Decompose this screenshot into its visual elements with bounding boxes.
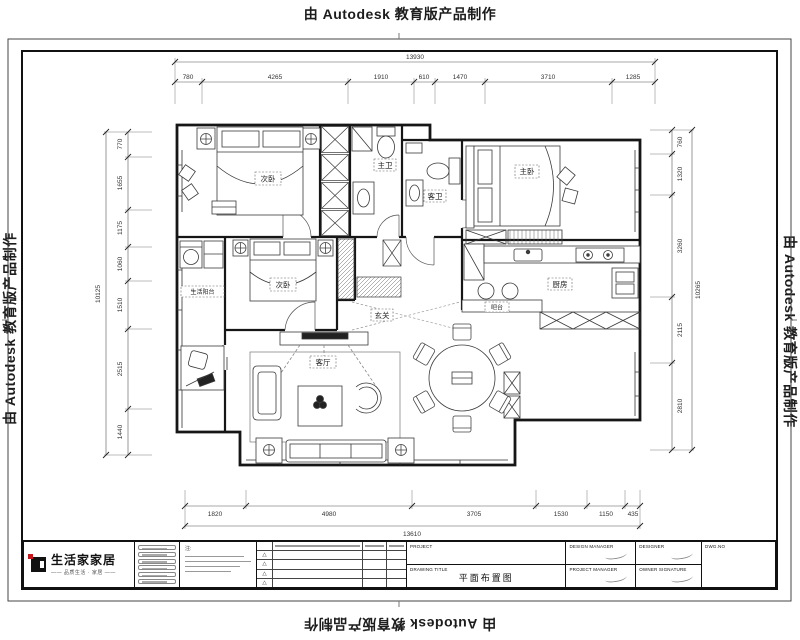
dimension-chain-right: 760 1320 3260 2115 2810 10265 [650,127,702,453]
svg-text:主卧: 主卧 [520,166,535,176]
project-info-block: PROJECT DESIGN MANAGER DESIGNER DRAWING … [407,542,702,587]
svg-text:主卫: 主卫 [378,160,393,170]
revision-row: △ [257,560,406,569]
code-box [138,545,176,550]
designer-signature [671,550,694,561]
code-box [138,559,176,564]
svg-text:770: 770 [117,138,124,149]
svg-text:3260: 3260 [677,238,684,253]
svg-text:1060: 1060 [117,256,124,271]
room-label-bath1: 主卫 [374,159,396,171]
svg-text:4265: 4265 [268,74,283,81]
design-manager-label: DESIGN MANAGER [569,544,613,549]
wardrobe-icon [322,127,349,236]
room-label-bar: 吧台 [485,302,509,312]
svg-text:1510: 1510 [117,297,124,312]
balcony-furniture [180,241,224,390]
code-box [138,565,176,570]
dwg-no-label: DWG.NO [705,544,725,549]
svg-text:玄关: 玄关 [375,310,390,320]
title-block-notes-cell: 注: [180,542,257,587]
svg-text:1285: 1285 [626,74,641,81]
project-label: PROJECT [410,544,432,549]
svg-text:1820: 1820 [208,511,223,518]
room-label-balcony: 生活阳台 [181,286,224,297]
svg-text:4980: 4980 [322,511,337,518]
sheet-frame [2,33,797,607]
revision-row: △ [257,570,406,579]
room-label-living: 客厅 [310,356,336,368]
living-room-furniture [250,332,414,463]
code-box [138,579,176,584]
project-manager-signature [605,573,628,584]
svg-text:1655: 1655 [117,175,124,190]
master-bedroom-furniture [466,146,578,244]
svg-text:1320: 1320 [677,166,684,181]
drawing-title-value: 平面布置图 [407,571,565,584]
room-label-bath2: 客卫 [424,190,446,202]
room-label-bedroom2: 次卧 [270,278,296,291]
room-label-entry: 玄关 [371,309,393,321]
svg-text:10265: 10265 [695,281,702,299]
svg-text:435: 435 [628,511,639,518]
revision-table: △ △ △ △ [257,542,407,587]
svg-text:610: 610 [419,74,430,81]
revision-row: △ [257,579,406,587]
project-manager-label: PROJECT MANAGER [569,567,617,572]
designer-label: DESIGNER [639,544,664,549]
svg-text:客厅: 客厅 [316,357,331,367]
dimension-chain-left: 770 1655 1175 1060 1510 2515 1440 10125 [95,129,152,458]
notes-line [185,556,244,558]
brand-name: 生活家家居 [51,554,116,567]
svg-text:3705: 3705 [467,511,482,518]
svg-text:1150: 1150 [599,511,613,518]
svg-text:780: 780 [183,74,194,81]
room-label-bedroom1: 次卧 [255,172,281,185]
code-box [138,552,176,557]
entry-hall-cabinets [338,239,460,330]
title-block-logo-cell: 生活家家居 —— 品质生活 · 家居 —— [24,542,135,587]
svg-text:生活阳台: 生活阳台 [190,288,214,296]
svg-text:1440: 1440 [117,424,124,439]
bedroom1-furniture [179,127,320,215]
notes-line [185,561,251,563]
svg-text:2115: 2115 [677,323,684,337]
owner-signature [671,573,694,584]
dining-set [413,324,512,432]
svg-text:1470: 1470 [453,74,468,81]
svg-text:1530: 1530 [554,511,569,518]
svg-text:10125: 10125 [95,285,102,303]
code-box [138,572,176,577]
svg-text:13610: 13610 [403,531,421,538]
svg-text:次卧: 次卧 [261,174,276,184]
notes-line [185,571,231,573]
design-manager-signature [605,550,628,561]
svg-text:1175: 1175 [117,221,124,235]
title-block-codes-cell [135,542,180,587]
owner-signature-label: OWNER SIGNATURE [639,567,686,572]
svg-text:3710: 3710 [541,74,556,81]
notes-line [185,566,240,568]
svg-text:次卧: 次卧 [276,280,291,290]
revision-row: △ [257,551,406,560]
title-block: 生活家家居 —— 品质生活 · 家居 —— 注: △ △ △ △ [22,540,777,589]
svg-text:13930: 13930 [406,54,424,61]
revision-header-row [257,542,406,551]
room-label-master: 主卧 [515,165,539,178]
notes-label: 注: [185,546,251,552]
room-label-kitchen: 厨房 [548,278,572,290]
svg-text:760: 760 [677,136,684,147]
bedroom2-furniture [233,239,333,301]
svg-text:1910: 1910 [374,74,389,81]
svg-text:厨房: 厨房 [553,279,568,289]
drawing-sheet: 由 Autodesk 教育版产品制作 由 Autodesk 教育版产品制作 由 … [0,0,800,640]
dimension-chain-top: 13930 780 4265 1910 610 1470 3710 1285 [172,54,658,104]
dimension-chain-bottom: 1820 4980 3705 1530 1150 435 13610 [182,490,643,538]
svg-text:2515: 2515 [117,361,124,376]
svg-text:吧台: 吧台 [491,304,503,312]
dwg-no-cell: DWG.NO [702,542,775,587]
brand-tagline: —— 品质生活 · 家居 —— [51,569,116,576]
svg-text:客卫: 客卫 [428,191,443,201]
svg-text:2810: 2810 [677,398,684,413]
brand-logo-icon [31,557,46,572]
